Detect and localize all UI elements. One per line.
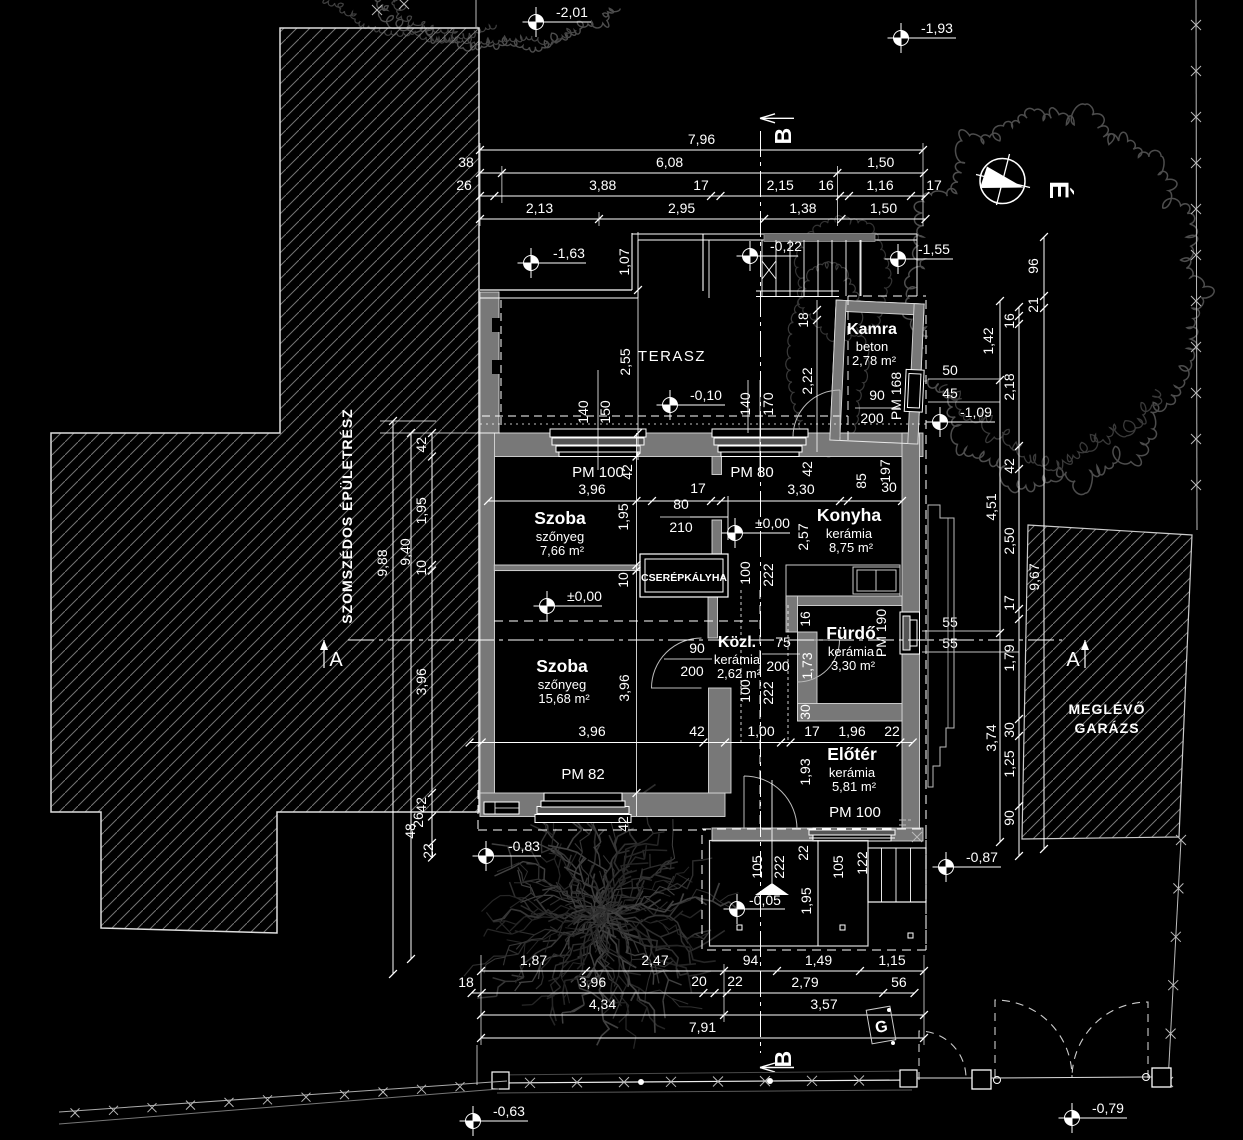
svg-text:1,87: 1,87 (520, 952, 547, 968)
svg-text:42: 42 (1001, 458, 1017, 474)
svg-text:90: 90 (869, 387, 885, 403)
svg-text:2,13: 2,13 (526, 200, 553, 216)
svg-text:15,68 m²: 15,68 m² (538, 691, 590, 706)
svg-text:1,95: 1,95 (413, 497, 429, 524)
svg-text:2,79: 2,79 (791, 974, 818, 990)
svg-text:1,00: 1,00 (747, 723, 774, 739)
svg-text:8,75 m²: 8,75 m² (829, 540, 874, 555)
svg-text:42: 42 (413, 797, 429, 813)
svg-text:3,96: 3,96 (578, 481, 605, 497)
svg-text:200: 200 (766, 658, 790, 674)
svg-text:4,34: 4,34 (589, 996, 616, 1012)
svg-text:3,96: 3,96 (616, 674, 632, 701)
svg-text:-0,10: -0,10 (690, 387, 722, 403)
svg-text:1,25: 1,25 (1001, 750, 1017, 777)
svg-text:222: 222 (760, 681, 776, 705)
svg-text:17: 17 (926, 177, 942, 193)
svg-text:±0,00: ±0,00 (567, 588, 602, 604)
svg-text:CSERÉPKÁLYHA: CSERÉPKÁLYHA (641, 571, 727, 584)
svg-text:170: 170 (760, 392, 776, 416)
svg-text:38: 38 (458, 154, 474, 170)
svg-text:42: 42 (615, 816, 631, 832)
svg-text:Fürdő: Fürdő (826, 623, 876, 643)
svg-text:1,93: 1,93 (797, 758, 813, 785)
svg-text:90: 90 (689, 640, 705, 656)
svg-text:TERASZ: TERASZ (638, 348, 706, 365)
svg-text:7,96: 7,96 (688, 131, 715, 147)
svg-text:42: 42 (689, 723, 705, 739)
svg-text:Kamra: Kamra (847, 321, 897, 338)
svg-text:A: A (329, 649, 343, 671)
svg-text:PM 80: PM 80 (730, 464, 773, 481)
svg-text:26: 26 (456, 177, 472, 193)
svg-text:3,96: 3,96 (413, 668, 429, 695)
svg-text:9,40: 9,40 (397, 538, 413, 565)
svg-text:197: 197 (877, 459, 893, 483)
svg-text:17: 17 (1001, 595, 1017, 611)
svg-text:21: 21 (1025, 297, 1041, 313)
svg-text:7,66 m²: 7,66 m² (540, 543, 585, 558)
svg-text:szőnyeg: szőnyeg (536, 529, 584, 544)
svg-text:90: 90 (1001, 810, 1017, 826)
svg-text:Közl.: Közl. (718, 634, 756, 651)
svg-text:-1,63: -1,63 (553, 245, 585, 261)
svg-text:17: 17 (690, 480, 706, 496)
svg-text:Szoba: Szoba (536, 656, 588, 676)
svg-text:A: A (1066, 649, 1080, 671)
svg-text:200: 200 (860, 410, 884, 426)
svg-text:É: É (1044, 181, 1075, 199)
svg-text:1,15: 1,15 (878, 952, 905, 968)
svg-text:22: 22 (727, 973, 743, 989)
svg-text:1,79: 1,79 (1001, 644, 1017, 671)
svg-text:1,16: 1,16 (866, 177, 893, 193)
svg-text:2,57: 2,57 (795, 523, 811, 550)
svg-text:1,73: 1,73 (799, 652, 815, 679)
svg-text:3,96: 3,96 (579, 974, 606, 990)
svg-text:1,95: 1,95 (615, 503, 631, 530)
svg-text:222: 222 (760, 563, 776, 587)
svg-text:20: 20 (691, 973, 707, 989)
svg-text:105: 105 (830, 855, 846, 879)
svg-text:80: 80 (673, 496, 689, 512)
svg-text:210: 210 (669, 519, 693, 535)
svg-text:PM 100: PM 100 (829, 804, 881, 821)
svg-text:50: 50 (942, 362, 958, 378)
svg-text:±0,00: ±0,00 (755, 515, 790, 531)
svg-text:PM 100: PM 100 (572, 464, 624, 481)
svg-text:Előtér: Előtér (827, 744, 877, 764)
svg-text:85: 85 (853, 473, 869, 489)
svg-text:GARÁZS: GARÁZS (1074, 720, 1139, 736)
svg-text:10: 10 (615, 572, 631, 588)
svg-text:94: 94 (743, 952, 759, 968)
svg-text:1,49: 1,49 (805, 952, 832, 968)
svg-text:szőnyeg: szőnyeg (538, 677, 586, 692)
svg-text:4,51: 4,51 (983, 493, 999, 520)
svg-text:45: 45 (942, 385, 958, 401)
svg-text:150: 150 (597, 400, 613, 424)
svg-text:-0,83: -0,83 (508, 838, 540, 854)
svg-text:56: 56 (891, 974, 907, 990)
svg-text:100: 100 (737, 561, 753, 585)
svg-text:122: 122 (854, 851, 870, 875)
svg-text:2,95: 2,95 (668, 200, 695, 216)
svg-text:2,47: 2,47 (641, 952, 668, 968)
svg-text:kerámia: kerámia (828, 644, 875, 659)
svg-text:SZOMSZÉDOS ÉPÜLETRÉSZ: SZOMSZÉDOS ÉPÜLETRÉSZ (339, 408, 355, 623)
svg-text:96: 96 (1025, 258, 1041, 274)
svg-text:-0,63: -0,63 (493, 1103, 525, 1119)
svg-text:9,67: 9,67 (1026, 563, 1042, 590)
svg-text:1,95: 1,95 (798, 887, 814, 914)
svg-text:30: 30 (797, 704, 813, 720)
svg-text:3,30: 3,30 (787, 481, 814, 497)
svg-text:-1,55: -1,55 (918, 241, 950, 257)
svg-text:beton: beton (856, 339, 889, 354)
svg-text:1,07: 1,07 (616, 248, 632, 275)
svg-text:B: B (770, 1051, 796, 1068)
svg-text:PM 82: PM 82 (561, 766, 604, 783)
svg-text:Szoba: Szoba (534, 508, 586, 528)
svg-text:1,96: 1,96 (838, 723, 865, 739)
svg-text:140: 140 (575, 400, 591, 424)
svg-text:-2,01: -2,01 (556, 4, 588, 20)
svg-text:75: 75 (775, 634, 791, 650)
svg-text:-0,87: -0,87 (966, 849, 998, 865)
svg-text:2,18: 2,18 (1001, 373, 1017, 400)
svg-text:2,22: 2,22 (799, 367, 815, 394)
svg-text:9,88: 9,88 (374, 549, 390, 576)
svg-text:Konyha: Konyha (817, 505, 881, 525)
svg-text:2,15: 2,15 (767, 177, 794, 193)
svg-text:55: 55 (942, 614, 958, 630)
svg-text:42: 42 (619, 464, 635, 480)
svg-text:1,50: 1,50 (870, 200, 897, 216)
svg-text:55: 55 (942, 635, 958, 651)
svg-text:22: 22 (420, 843, 436, 859)
svg-text:-0,22: -0,22 (770, 238, 802, 254)
svg-text:42: 42 (799, 461, 815, 477)
svg-text:3,74: 3,74 (983, 724, 999, 751)
svg-text:3,57: 3,57 (810, 996, 837, 1012)
svg-text:10: 10 (413, 560, 429, 576)
svg-text:100: 100 (737, 679, 753, 703)
svg-text:105: 105 (749, 855, 765, 879)
svg-text:18: 18 (458, 974, 474, 990)
svg-text:1,38: 1,38 (789, 200, 816, 216)
svg-text:2,50: 2,50 (1001, 527, 1017, 554)
svg-text:kerámia: kerámia (826, 526, 873, 541)
svg-text:5,81 m²: 5,81 m² (832, 779, 877, 794)
svg-text:6,08: 6,08 (656, 154, 683, 170)
svg-text:17: 17 (693, 177, 709, 193)
svg-text:18: 18 (795, 312, 811, 328)
svg-text:kerámia: kerámia (829, 765, 876, 780)
svg-text:kerámia: kerámia (714, 652, 761, 667)
svg-text:16: 16 (818, 177, 834, 193)
svg-text:3,96: 3,96 (578, 723, 605, 739)
svg-text:16: 16 (1001, 313, 1017, 329)
svg-text:PM 168: PM 168 (888, 372, 904, 420)
svg-text:-1,93: -1,93 (921, 20, 953, 36)
svg-text:MEGLÉVŐ: MEGLÉVŐ (1068, 700, 1145, 717)
svg-text:7,91: 7,91 (689, 1019, 716, 1035)
svg-text:2,62 m²: 2,62 m² (717, 666, 762, 681)
svg-text:-1,09: -1,09 (960, 404, 992, 420)
svg-text:17: 17 (804, 723, 820, 739)
svg-text:42: 42 (413, 437, 429, 453)
svg-text:140: 140 (737, 392, 753, 416)
svg-text:3,30 m²: 3,30 m² (831, 658, 876, 673)
svg-text:2,78 m²: 2,78 m² (852, 353, 897, 368)
svg-text:1,42: 1,42 (980, 327, 996, 354)
svg-text:26: 26 (410, 812, 426, 828)
svg-text:B: B (770, 128, 796, 145)
svg-text:3,88: 3,88 (589, 177, 616, 193)
svg-text:2,55: 2,55 (617, 348, 633, 375)
svg-text:16: 16 (797, 611, 813, 627)
svg-text:200: 200 (680, 663, 704, 679)
svg-text:-0,79: -0,79 (1092, 1100, 1124, 1116)
svg-text:222: 222 (771, 855, 787, 879)
svg-text:22: 22 (884, 723, 900, 739)
svg-text:-0,05: -0,05 (749, 892, 781, 908)
svg-text:30: 30 (1001, 722, 1017, 738)
svg-text:1,50: 1,50 (867, 154, 894, 170)
svg-text:22: 22 (795, 845, 811, 861)
